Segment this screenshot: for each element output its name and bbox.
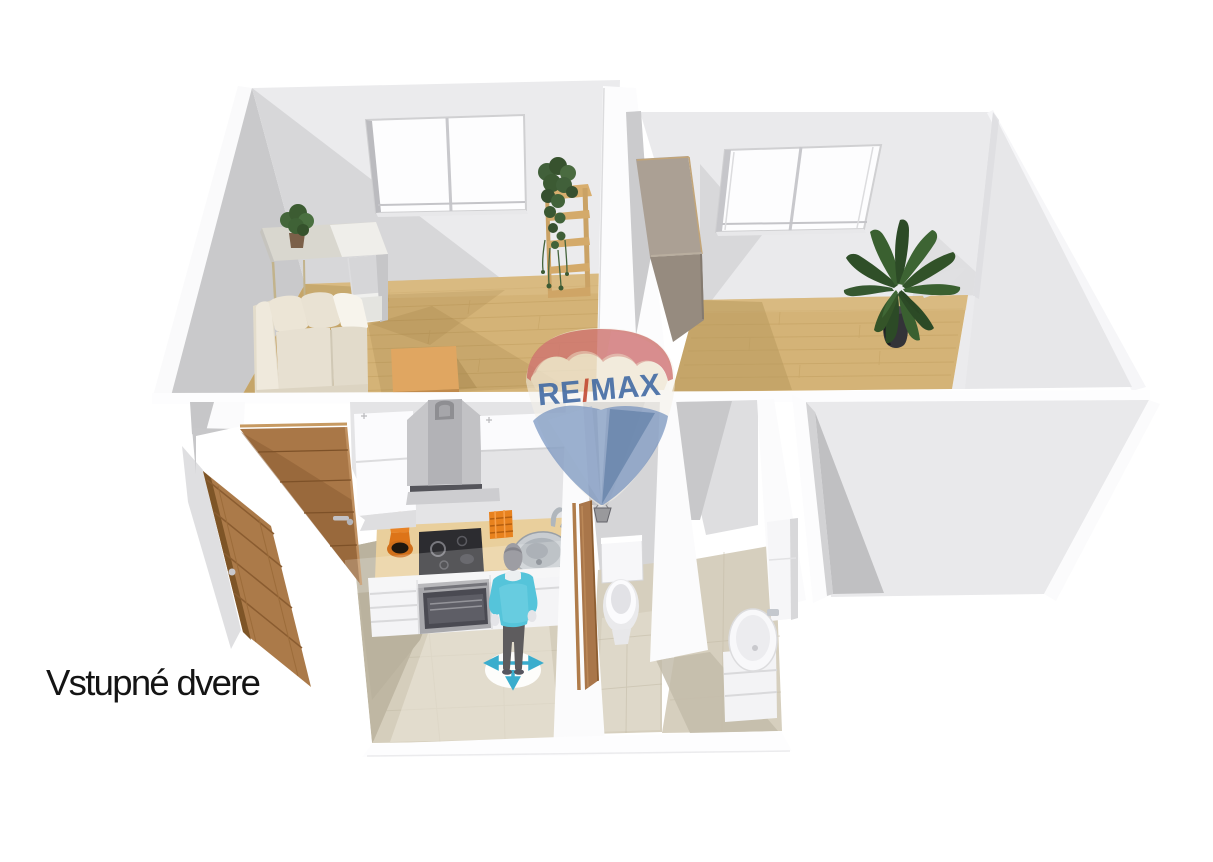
svg-text:Vstupné dvere: Vstupné dvere: [46, 662, 260, 703]
